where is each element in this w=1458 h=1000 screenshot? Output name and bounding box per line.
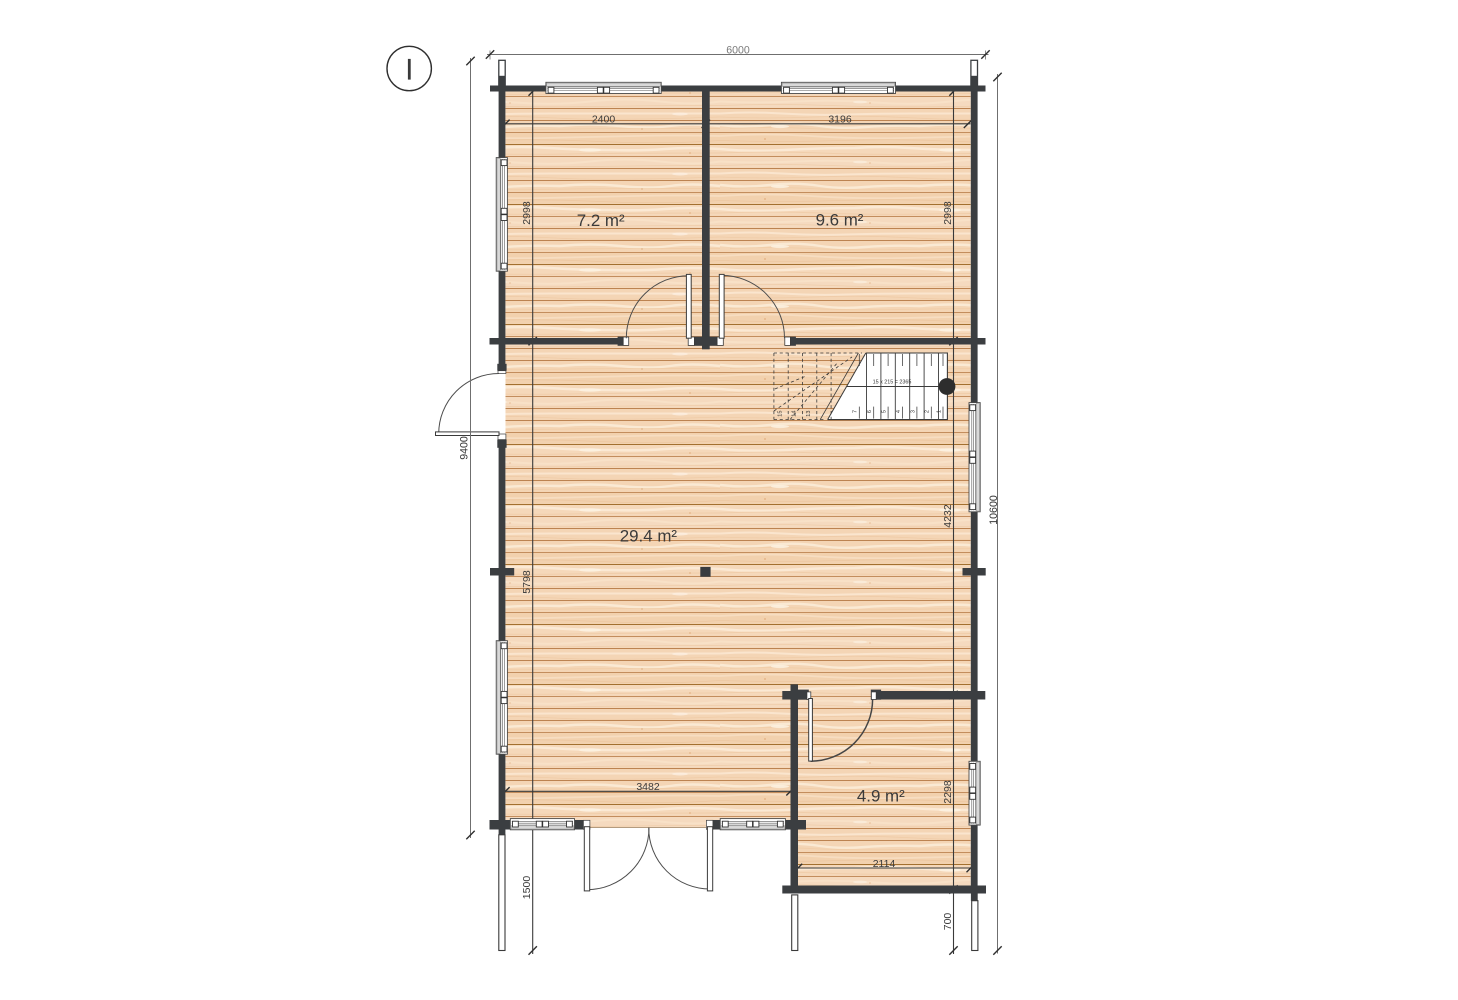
svg-text:3482: 3482 [636, 781, 660, 793]
svg-text:2: 2 [925, 410, 931, 413]
svg-text:6000: 6000 [726, 45, 750, 57]
svg-text:14: 14 [792, 410, 798, 416]
svg-text:700: 700 [942, 913, 954, 931]
svg-text:2114: 2114 [873, 858, 896, 870]
svg-text:2998: 2998 [521, 201, 533, 225]
svg-text:7: 7 [853, 410, 859, 413]
svg-text:3196: 3196 [828, 113, 852, 125]
svg-text:10600: 10600 [988, 495, 1000, 525]
svg-text:2298: 2298 [942, 780, 954, 804]
svg-text:4: 4 [896, 410, 902, 413]
svg-text:15 x 215 = 2365: 15 x 215 = 2365 [873, 379, 912, 385]
svg-text:5: 5 [882, 410, 888, 413]
svg-text:4.9 m²: 4.9 m² [857, 787, 905, 806]
svg-text:15: 15 [777, 410, 783, 416]
svg-text:2998: 2998 [942, 201, 954, 225]
svg-text:3: 3 [910, 410, 916, 413]
svg-text:9400: 9400 [459, 436, 471, 460]
svg-text:9.6 m²: 9.6 m² [816, 211, 864, 230]
svg-text:5798: 5798 [521, 570, 533, 594]
svg-text:1500: 1500 [521, 876, 533, 900]
svg-text:13: 13 [806, 410, 812, 416]
svg-text:6: 6 [867, 410, 873, 413]
svg-text:29.4 m²: 29.4 m² [620, 526, 678, 545]
svg-text:2400: 2400 [592, 113, 616, 125]
svg-text:7.2 m²: 7.2 m² [577, 211, 625, 230]
svg-text:1: 1 [936, 410, 942, 413]
svg-text:4232: 4232 [942, 504, 954, 528]
